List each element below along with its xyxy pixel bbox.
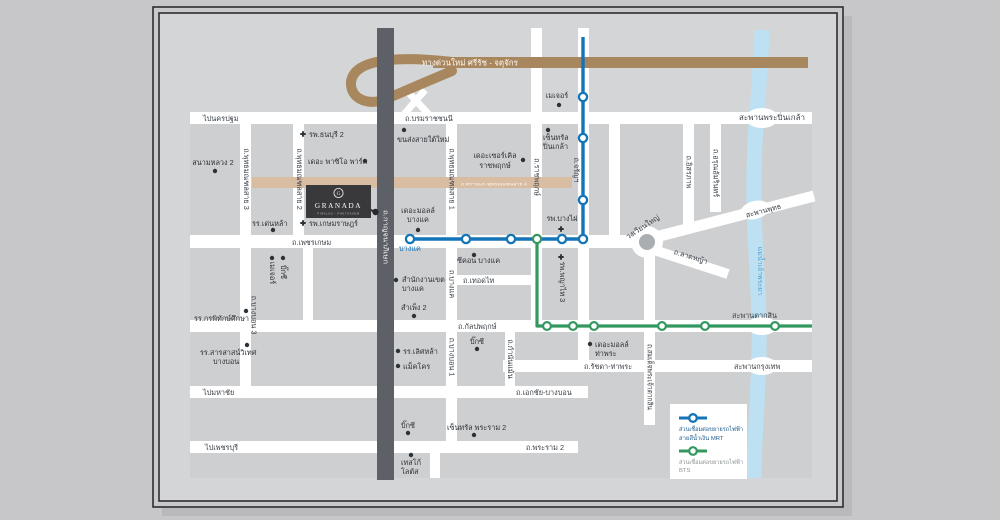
road-label-ekkachai-bangbon: ถ.เอกชัย-บางบอน [516, 388, 572, 397]
road-label-pai-phetchaburi: ไปเพชรบุรี [204, 443, 238, 452]
poi-label-seacon: ซีคอน บางแค [457, 256, 500, 265]
poi-label-bigc-phetkasem: บิ๊กซี [279, 265, 289, 279]
road-label-kamnan-maen: ถ.กำนันแม้น [506, 339, 515, 378]
poi-label-central-pinklao-1: เซ็นทรัล [543, 132, 569, 142]
legend: ส่วนเชื่อมต่อขยายรถไฟฟ้า สายสีน้ำเงิน MR… [670, 404, 747, 479]
granada-tagline: PINKLAO - PHETKASEM [317, 212, 360, 216]
road-label-kalpapruek: ถ.กัลปพฤกษ์ [458, 322, 497, 331]
legend-mrt-station-sample [689, 414, 697, 422]
road-label-phutthamonthon-sai2: ถ.พุทธมณฑลสาย 2 [295, 148, 304, 210]
road-label-arun-amarin: ถ.อรุณอัมรินทร์ [712, 149, 721, 197]
granada-location-pin [372, 209, 378, 215]
granada-name: GRANADA [315, 202, 362, 210]
road-label-rama2: ถ.พระราม 2 [526, 443, 564, 452]
road-label-pai-nakhonpathom: ไปนครปฐม [202, 114, 239, 123]
road-label-ratchada-thapra: ถ.รัชดา-ท่าพระ [584, 362, 632, 371]
poi-label-mall-thapra-1: เดอะมอลล์ [595, 340, 629, 349]
location-map: ถ.พรานนก-พุทธมณฑลสาย 4 ทางด่วนใหม่ ศรีรั… [0, 0, 1000, 520]
road-label-somdet-taksin: ถ.สมเด็จพระเจ้าตากสิน [646, 344, 656, 410]
wongwian-yai-roundabout [639, 234, 655, 250]
poi-label-makro: แม็คโคร [403, 361, 430, 371]
road-label-pai-mahachai: ไปมหาชัย [202, 388, 234, 397]
legend-mrt-text-1: ส่วนเชื่อมต่อขยายรถไฟฟ้า [679, 425, 743, 433]
legend-bts-text-1: ส่วนเชื่อมต่อขยายรถไฟฟ้า [679, 458, 743, 466]
road-label-phutthamonthon-sai3: ถ.พุทธมณฑลสาย 3 [242, 148, 251, 210]
poi-label-district-office-2: บางแค [402, 284, 424, 293]
road-label-itsaraphap: ถ.อิสรภาพ [685, 156, 694, 189]
poi-label-kasemrad: รพ.เกษมราษฎร์ [309, 219, 358, 228]
road-label-bangkhae: ถ.บางแค [448, 270, 457, 298]
poi-label-phyathai3: รพ.พญาไท 3 [558, 262, 567, 302]
road-label-bangbon1: ถ.บางบอน 1 [448, 338, 457, 377]
road-label-borommaratchachonnani: ถ.บรมราชชนนี [405, 114, 453, 123]
poi-label-major-pinklao: เมเจอร์ [546, 91, 568, 100]
poi-label-mall-bangkhae-1: เดอะมอลล์ [401, 206, 435, 215]
poi-label-central-rama2: เซ็นทรัล พระราม 2 [447, 422, 506, 432]
poi-label-mall-bangkhae-2: บางแค [407, 215, 429, 224]
legend-bts-station-sample [689, 447, 697, 455]
poi-label-major-phetkasem: เมเจอร์ [268, 262, 277, 284]
road-label-kanchanaphisek: ถ.กาญจนาภิเษก [382, 210, 390, 264]
poi-label-lertlah: รร.เลิศหล้า [403, 347, 438, 356]
poi-label-circle-ratchapruek-2: ราชพฤกษ์ [479, 161, 511, 170]
road-label-phutthamonthon-sai1: ถ.พุทธมณฑลสาย 1 [448, 148, 457, 210]
poi-label-kornpitak: รร.กรพิทักษ์ศึกษา [194, 314, 249, 323]
poi-label-mall-thapra-2: ท่าพระ [595, 349, 617, 358]
bridge-label-krungthep: สะพานกรุงเทพ [734, 362, 780, 371]
poi-label-tesco-1: เทสโก้ [401, 458, 421, 467]
poi-label-circle-ratchapruek-1: เดอะเซอร์เคิล [473, 151, 516, 160]
granada-monogram: G [337, 191, 341, 197]
mrt-bts-interchange-station [533, 235, 541, 243]
poi-label-bigc-rama2: บิ๊กซี [401, 420, 415, 430]
poi-label-thonburi2: รพ.ธนบุรี 2 [309, 130, 344, 139]
poi-label-bigc-kalpapruek: บิ๊กซี [470, 336, 484, 346]
road-label-ratchapruek: ถ.ราชพฤกษ์ [533, 158, 542, 196]
poi-label-bangphai: รพ.บางไผ่ [547, 214, 578, 223]
poi-label-paseo-park: เดอะ พาซิโอ พาร์ค [308, 157, 368, 166]
poi-label-central-pinklao-2: ปิ่นเกล้า [542, 141, 568, 151]
poi-label-tesco-2: โลตัส [401, 467, 419, 476]
granada-logo: G GRANADA PINKLAO - PHETKASEM [306, 185, 379, 218]
expressway-label: ทางด่วนใหม่ ศรีรัช - จตุจักร [422, 58, 519, 68]
poi-label-district-office-1: สำนักงานเขต [402, 275, 445, 284]
poi-label-denla: รร.เด่นหล้า [252, 219, 287, 228]
poi-label-sarasas-2: บางบอน [213, 357, 239, 366]
poi-label-bus-terminal: ขนส่งสายใต้ใหม่ [397, 135, 449, 144]
road-label-phetkasem: ถ.เพชรเกษม [292, 238, 331, 247]
poi-label-sampheng2: สำเพ็ง 2 [401, 302, 427, 312]
bridge-label-phra-pinklao: สะพานพระปิ่นเกล้า [739, 112, 805, 122]
station-label-bangkhae: บางแค [399, 244, 421, 253]
road-label-charan: ถ.จรัญฯ [572, 158, 581, 183]
poi-label-sarasas-1: รร.สารสาสน์วิเทศ [200, 348, 257, 357]
poi-label-sanam-luang2: สนามหลวง 2 [192, 158, 233, 167]
bridge-label-taksin: สะพานตากสิน [732, 311, 777, 320]
legend-bts-text-2: BTS [679, 468, 691, 474]
road-label-bangbon3: ถ.บางบอน 3 [250, 296, 259, 335]
road-label-thoet-thai: ถ.เทอดไท [463, 276, 495, 285]
